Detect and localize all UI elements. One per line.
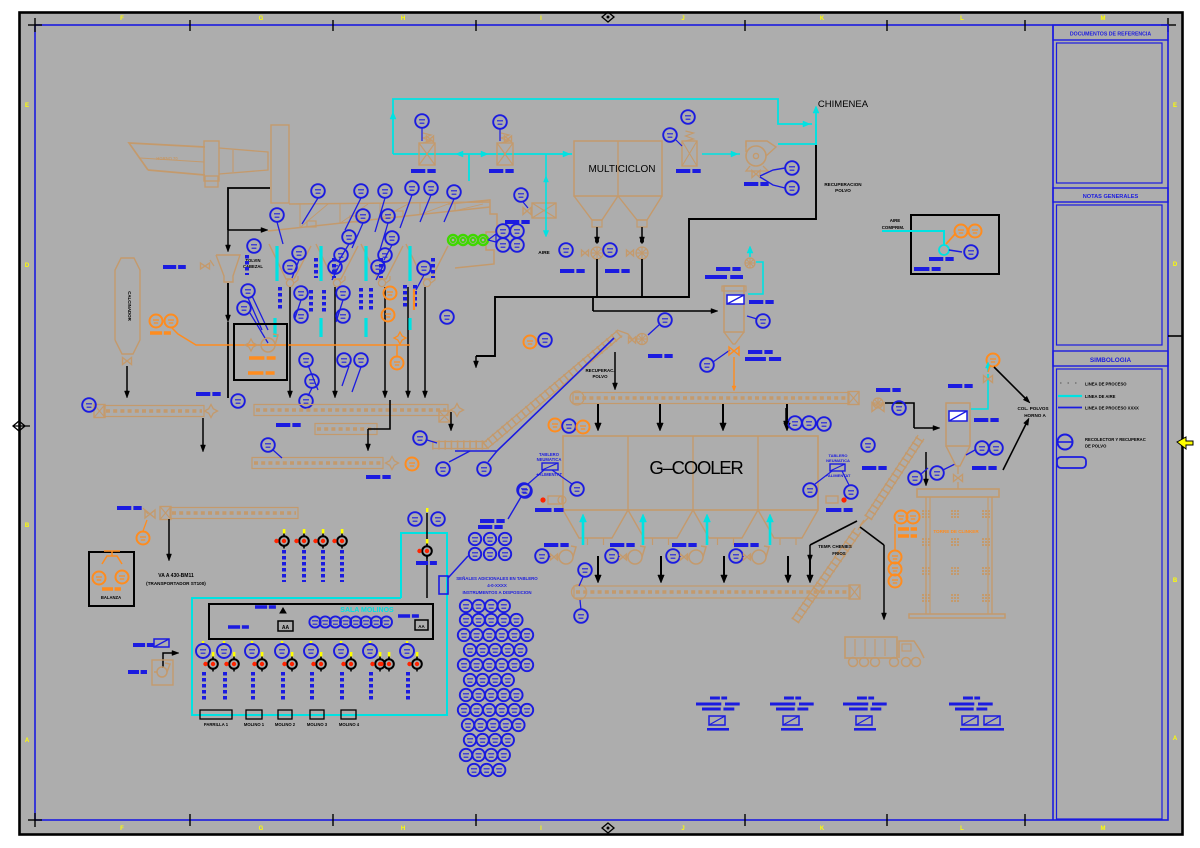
svg-text:POLVO: POLVO [835,188,851,193]
svg-text:K: K [820,826,825,832]
svg-text:D: D [1173,262,1178,268]
svg-text:MULTICICLON: MULTICICLON [588,164,655,175]
svg-text:(TRANSPORTADOR ST100): (TRANSPORTADOR ST100) [146,581,206,586]
svg-text:DOCUMENTOS DE REFERENCIA: DOCUMENTOS DE REFERENCIA [1070,32,1151,38]
svg-text:H: H [401,826,405,832]
svg-text:E: E [25,103,29,109]
svg-text:NEUMATICA: NEUMATICA [537,457,562,462]
svg-text:NEUMATICA: NEUMATICA [826,458,850,463]
svg-text:E: E [1173,103,1177,109]
svg-text:HORNO A: HORNO A [1024,413,1046,418]
svg-text:G: G [259,826,264,832]
svg-text:CHIMENEA: CHIMENEA [818,99,869,110]
svg-text:CALCINADOR: CALCINADOR [127,291,132,321]
svg-text:F: F [120,826,124,832]
svg-text:A: A [25,738,30,744]
svg-text:F: F [120,16,124,22]
svg-text:J: J [681,826,684,832]
svg-text:MOLINO 3: MOLINO 3 [307,722,328,727]
svg-text:LINEA DE AIRE: LINEA DE AIRE [1085,394,1116,399]
svg-text:BALANZA: BALANZA [101,595,121,600]
svg-text:AIRE: AIRE [538,250,550,256]
svg-text:H: H [401,16,405,22]
svg-text:SIMBOLOGIA: SIMBOLOGIA [1090,357,1132,364]
svg-text:A: A [1173,736,1178,742]
svg-text:D: D [25,263,30,269]
svg-text:AA: AA [282,625,290,631]
svg-text:L: L [960,826,964,832]
svg-text:AA: AA [418,624,425,629]
svg-text:TORRE DE CLINKER: TORRE DE CLINKER [933,529,979,534]
svg-text:MOLINO 2: MOLINO 2 [275,722,296,727]
svg-text:RECUPERAC.: RECUPERAC. [585,368,614,373]
svg-text:4-0-XXXX: 4-0-XXXX [487,583,507,588]
svg-text:MOLINO 4: MOLINO 4 [339,722,360,727]
svg-text:LINEA DE PROCESO XXXX: LINEA DE PROCESO XXXX [1085,406,1139,411]
svg-text:INSTRUMENTOS A DISPOSICION: INSTRUMENTOS A DISPOSICION [462,590,531,595]
svg-text:MOLINO 1: MOLINO 1 [244,722,265,727]
svg-text:RECUPERACION: RECUPERACION [824,182,862,187]
svg-text:COMPRIM.: COMPRIM. [882,225,904,230]
svg-text:G: G [259,16,264,22]
svg-text:M: M [1101,16,1106,22]
svg-text:M: M [1101,826,1106,832]
svg-text:K: K [820,16,825,22]
svg-text:RECOLECTOR Y RECUPERAC: RECOLECTOR Y RECUPERAC [1085,437,1146,442]
svg-text:G–COOLER: G–COOLER [649,457,743,478]
svg-text:SALA MOLINOS: SALA MOLINOS [340,607,394,614]
svg-text:COL. POLVOS: COL. POLVOS [1017,406,1048,411]
svg-text:SEÑALES ADICIONALES EN TABLERO: SEÑALES ADICIONALES EN TABLERO [456,576,538,581]
svg-text:PARRILLA 1: PARRILLA 1 [204,722,229,727]
svg-text:B: B [25,523,30,529]
svg-text:J: J [681,16,684,22]
svg-text:LINEA DE PROCESO: LINEA DE PROCESO [1085,382,1127,387]
svg-text:DE POLVO: DE POLVO [1085,444,1107,449]
svg-text:B: B [1173,578,1178,584]
svg-text:NOTAS GENERALES: NOTAS GENERALES [1083,194,1139,200]
svg-text:VA A 430-BM11: VA A 430-BM11 [158,573,194,579]
svg-text:AIRE: AIRE [890,218,901,223]
svg-text:FRIOS: FRIOS [832,551,845,556]
svg-text:L: L [960,16,964,22]
svg-text:TEMP. CHENIES: TEMP. CHENIES [818,544,852,549]
svg-text:POLVO: POLVO [592,374,608,379]
svg-text:HORNO 70: HORNO 70 [156,156,178,161]
